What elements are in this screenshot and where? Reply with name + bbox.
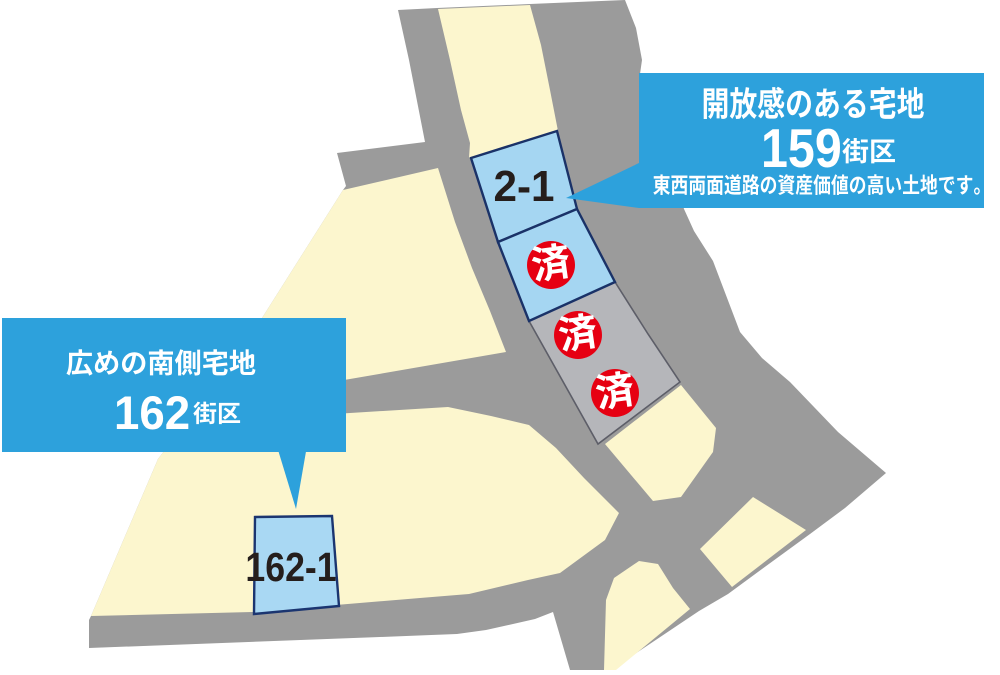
svg-text:162: 162: [114, 386, 190, 439]
svg-text:162-1: 162-1: [245, 545, 336, 591]
svg-text:2-1: 2-1: [493, 162, 554, 211]
svg-text:159: 159: [761, 117, 842, 179]
